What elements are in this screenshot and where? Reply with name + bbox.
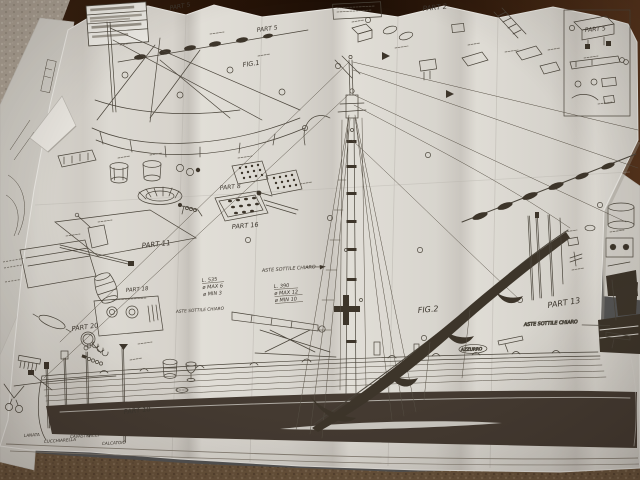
photo-of-ship-model-plans: L. 535 ø MAX 6 ø MIN 3 L. 390 ø MAX 12 ø… bbox=[0, 0, 640, 480]
photo-vignette bbox=[0, 0, 640, 480]
